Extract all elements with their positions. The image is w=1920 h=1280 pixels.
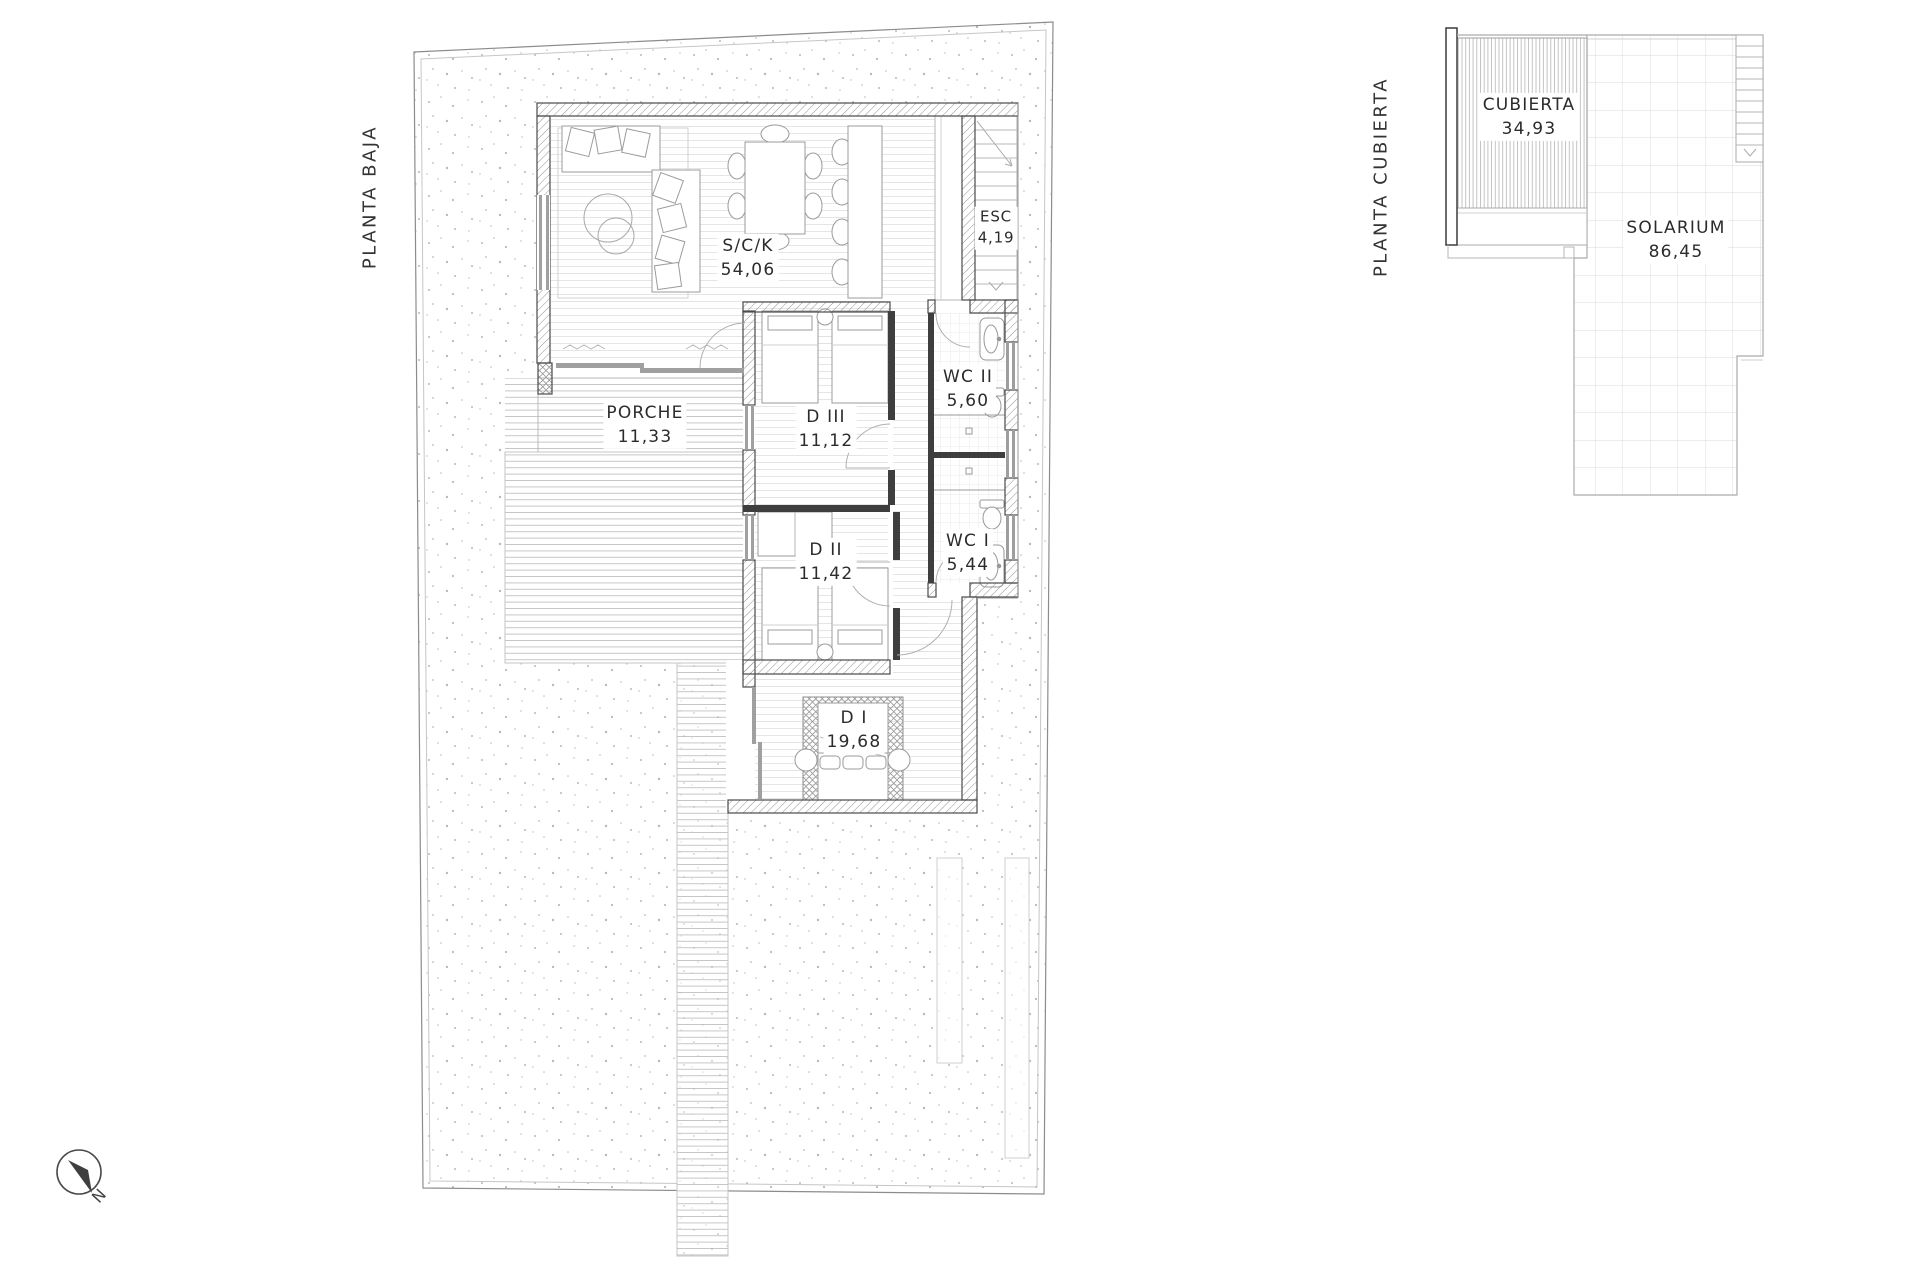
kitchen-counter (935, 116, 962, 300)
wall-wc1-south (970, 583, 1018, 597)
dining-table (745, 142, 805, 234)
garden-bed (937, 858, 962, 1063)
room-label-d2: D II 11,42 (796, 538, 857, 586)
wall-south (728, 800, 977, 813)
wall-d3-north (743, 302, 890, 312)
solarium-area (1574, 35, 1763, 495)
nightstand (795, 749, 817, 771)
room-label-sck: S/C/K 54,06 (718, 234, 779, 282)
wall-stair (962, 116, 975, 300)
wall-d2-south (743, 660, 890, 674)
wall-d3-d2 (743, 505, 890, 512)
room-label-solarium: SOLARIUM 86,45 (1623, 216, 1728, 264)
floorplan-drawing: N (0, 0, 1920, 1280)
north-compass: N (57, 1150, 110, 1207)
plan-title-planta-cubierta: PLANTA CUBIERTA (1371, 77, 1392, 277)
roof-stair-ladder (1736, 35, 1763, 162)
wall-d1-east (962, 597, 977, 800)
room-label-esc: ESC 4,19 (975, 207, 1018, 250)
plan-title-planta-baja: PLANTA BAJA (360, 125, 381, 269)
room-label-wc1: WC I 5,44 (943, 529, 993, 577)
floorplan-canvas: N PLANTA BAJA PLANTA CUBIERTA S/C/K 54,0… (0, 0, 1920, 1280)
wall-north (537, 103, 1018, 116)
wall-wc2-wc1 (928, 452, 1005, 458)
wc2-sink (980, 318, 1004, 360)
parapet-wall (1446, 28, 1457, 245)
room-label-porche: PORCHE 11,33 (603, 401, 686, 449)
plan-planta-baja (414, 22, 1053, 1256)
bed-d3-2 (832, 311, 888, 403)
garden-bed (1005, 858, 1029, 1158)
roof-step-outline (1448, 245, 1574, 258)
roof-ledge (1457, 208, 1587, 245)
room-label-d1: D I 19,68 (824, 706, 885, 754)
porch-pillar (538, 363, 552, 394)
wall-bath-west (928, 313, 934, 583)
room-label-d3: D III 11,12 (796, 405, 857, 453)
room-label-cubierta: CUBIERTA 34,93 (1480, 93, 1579, 141)
compass-needle-icon (68, 1160, 92, 1193)
bed-d3-1 (762, 311, 818, 403)
room-label-wc2: WC II 5,60 (940, 365, 996, 413)
nightstand (817, 644, 833, 660)
nightstand (888, 749, 910, 771)
